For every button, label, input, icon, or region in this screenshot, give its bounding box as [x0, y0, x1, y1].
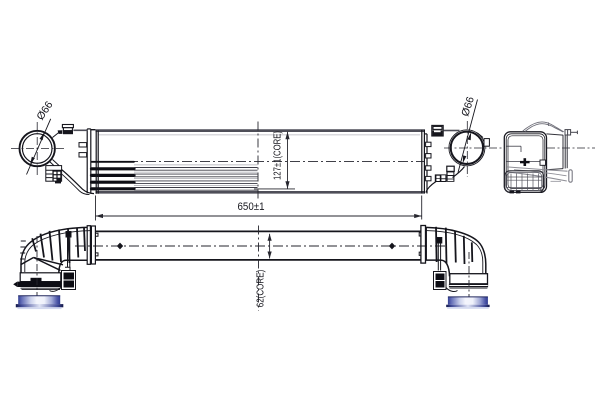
svg-text:Ø66: Ø66 — [34, 99, 55, 122]
svg-text:Ø66: Ø66 — [459, 95, 477, 118]
svg-text:650±1: 650±1 — [238, 201, 265, 213]
svg-text:62(CORE): 62(CORE) — [256, 270, 267, 308]
svg-text:127±1(CORE): 127±1(CORE) — [273, 131, 284, 180]
